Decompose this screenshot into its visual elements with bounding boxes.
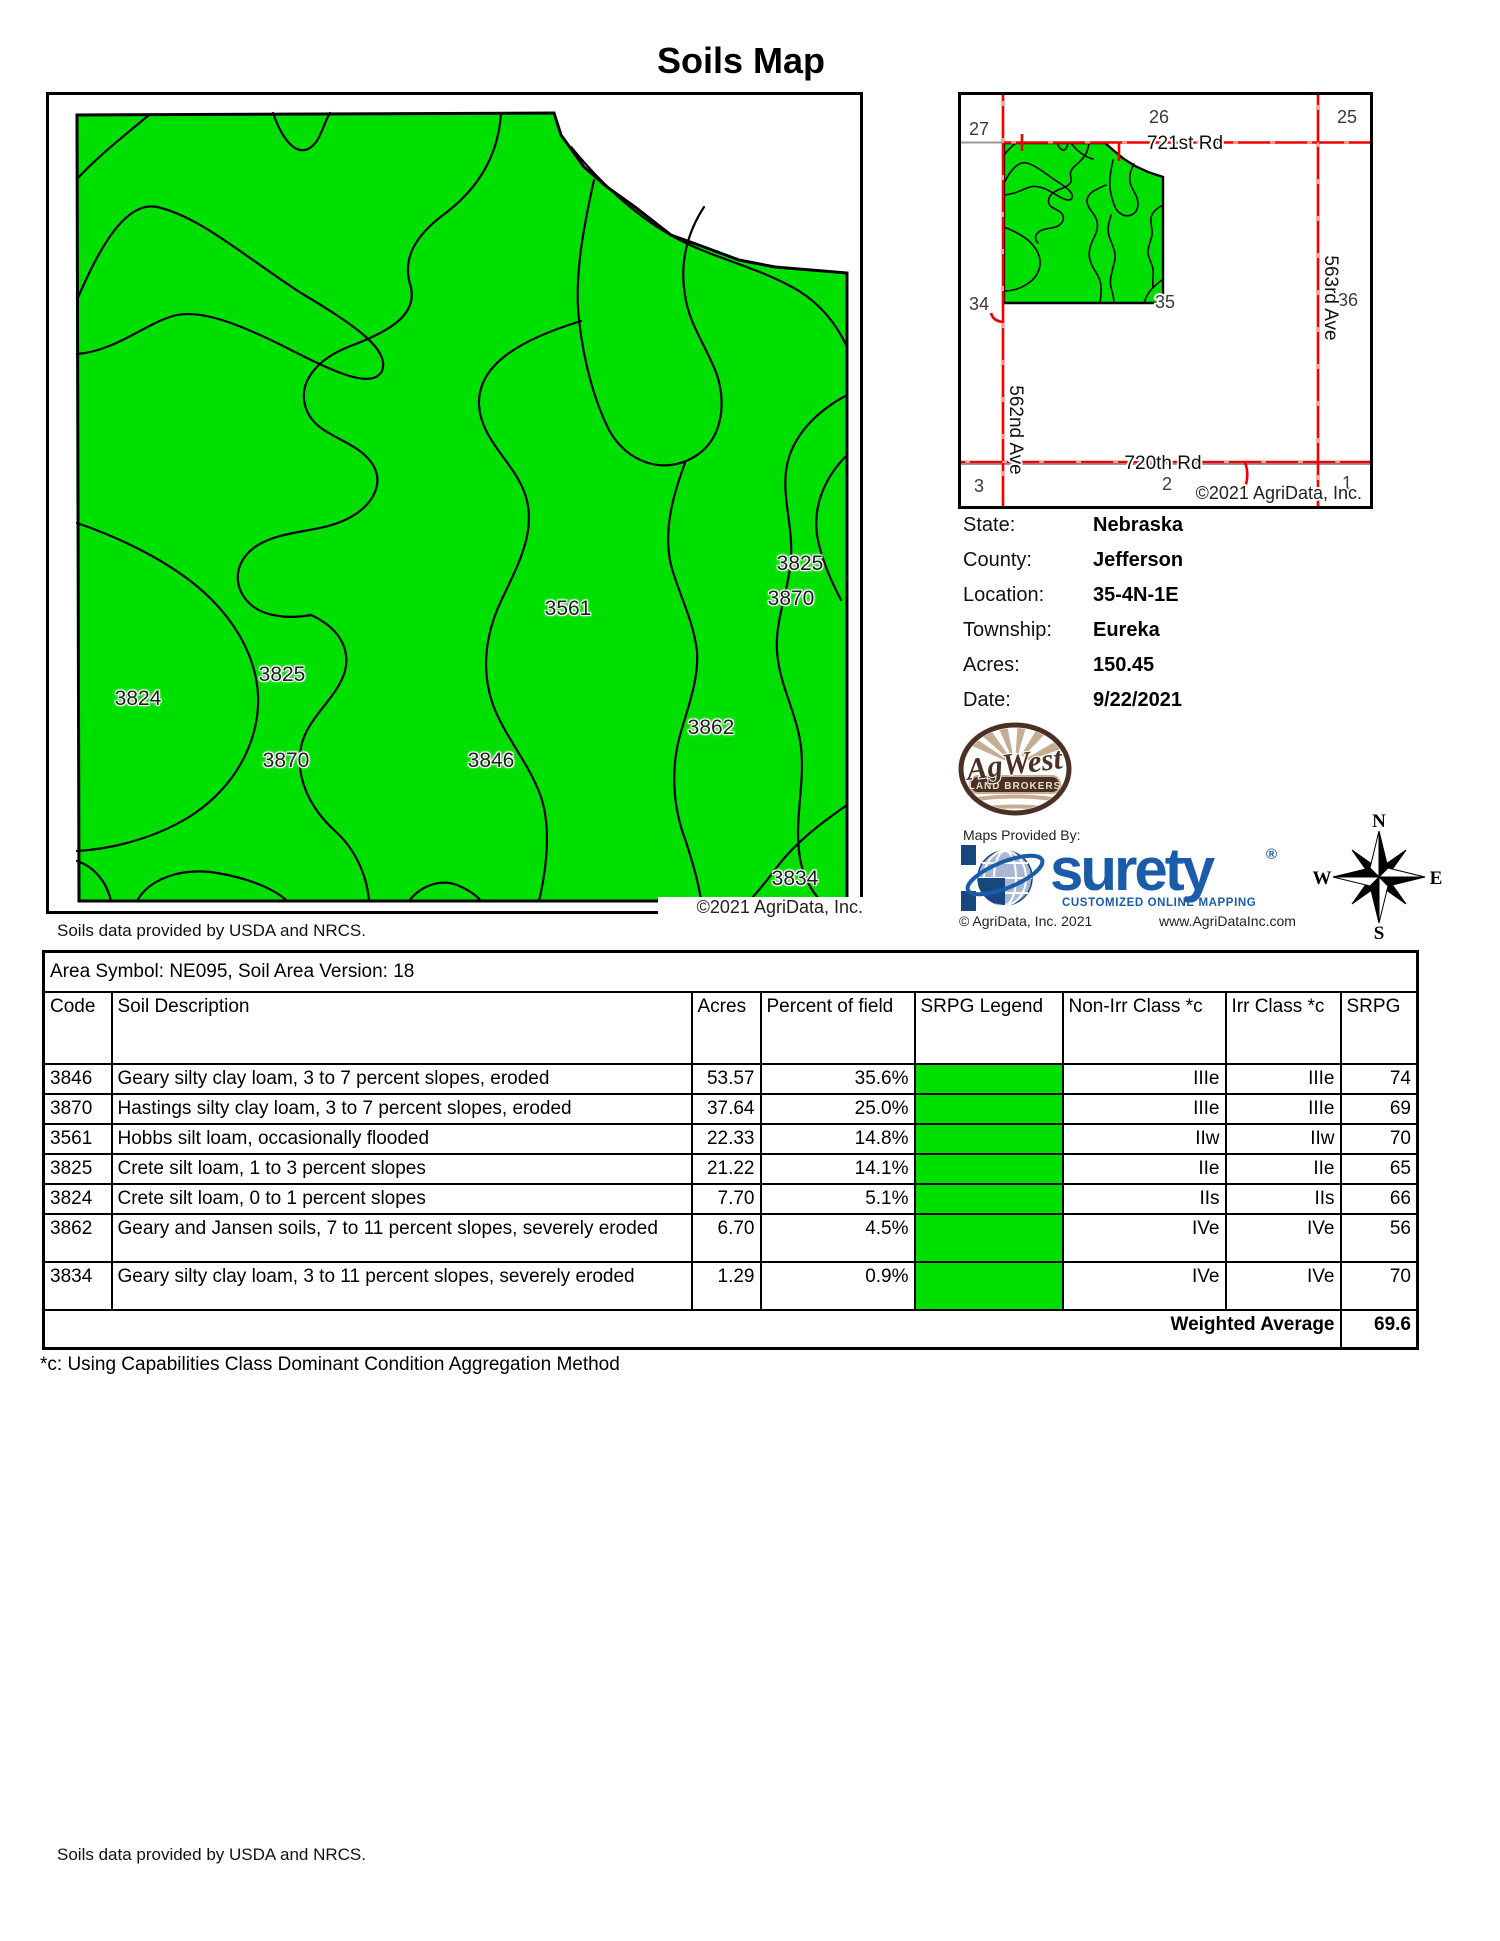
cell-percent: 5.1% (761, 1184, 915, 1214)
srpg-legend-swatch (915, 1184, 1063, 1214)
cell-percent: 14.8% (761, 1124, 915, 1154)
section-number: 27 (969, 119, 989, 139)
cell-srpg: 66 (1341, 1184, 1418, 1214)
cell-percent: 25.0% (761, 1094, 915, 1124)
compass-rose: N S E W (1304, 812, 1454, 947)
main-soil-map: 3825 3870 3561 3825 3824 3862 3870 3846 … (46, 92, 863, 914)
cell-acres: 6.70 (692, 1214, 761, 1262)
cell-description: Crete silt loam, 0 to 1 percent slopes (112, 1184, 692, 1214)
agridata-website: www.AgriDataInc.com (1159, 913, 1296, 929)
cell-description: Geary silty clay loam, 3 to 11 percent s… (112, 1262, 692, 1310)
srpg-legend-swatch (915, 1124, 1063, 1154)
cell-irr: IIIe (1226, 1064, 1341, 1094)
road-label-721st: 721st Rd (1147, 133, 1223, 154)
cell-nonirr: IVe (1063, 1262, 1226, 1310)
cell-srpg: 74 (1341, 1064, 1418, 1094)
cell-srpg: 69 (1341, 1094, 1418, 1124)
srpg-legend-swatch (915, 1064, 1063, 1094)
col-header-percent: Percent of field (761, 992, 915, 1064)
soil-area-label: 3870 (749, 587, 833, 611)
road-label-562nd: 562nd Ave (1005, 385, 1026, 474)
weighted-average-row: Weighted Average 69.6 (44, 1310, 1418, 1349)
info-value-county: Jefferson (1093, 549, 1183, 572)
cell-code: 3846 (44, 1064, 112, 1094)
main-map-attribution: Soils data provided by USDA and NRCS. (57, 921, 366, 941)
cell-description: Crete silt loam, 1 to 3 percent slopes (112, 1154, 692, 1184)
info-value-state: Nebraska (1093, 514, 1183, 537)
info-label-county: County: (963, 549, 1089, 572)
info-value-township: Eureka (1093, 619, 1160, 642)
cell-irr: IIe (1226, 1154, 1341, 1184)
cell-code: 3825 (44, 1154, 112, 1184)
aggregation-footnote: *c: Using Capabilities Class Dominant Co… (40, 1354, 620, 1376)
soils-table: Area Symbol: NE095, Soil Area Version: 1… (42, 950, 1419, 1350)
cell-code: 3561 (44, 1124, 112, 1154)
srpg-legend-swatch (915, 1094, 1063, 1124)
cell-irr: IVe (1226, 1262, 1341, 1310)
weighted-average-value: 69.6 (1341, 1310, 1418, 1349)
compass-e: E (1430, 868, 1443, 889)
table-row: 3561 Hobbs silt loam, occasionally flood… (44, 1124, 1418, 1154)
cell-irr: IIw (1226, 1124, 1341, 1154)
col-header-legend: SRPG Legend (915, 992, 1063, 1064)
cell-code: 3870 (44, 1094, 112, 1124)
col-header-acres: Acres (692, 992, 761, 1064)
soil-area-label: 3862 (669, 716, 753, 740)
road-label-563rd: 563rd Ave (1320, 255, 1341, 340)
cell-percent: 0.9% (761, 1262, 915, 1310)
cell-srpg: 70 (1341, 1262, 1418, 1310)
col-header-srpg: SRPG (1341, 992, 1418, 1064)
cell-irr: IIs (1226, 1184, 1341, 1214)
info-label-acres: Acres: (963, 654, 1089, 677)
srpg-legend-swatch (915, 1214, 1063, 1262)
cell-srpg: 56 (1341, 1214, 1418, 1262)
cell-nonirr: IIs (1063, 1184, 1226, 1214)
area-symbol-text: Area Symbol: NE095, Soil Area Version: 1… (44, 952, 1418, 993)
soils-map-report-page: Soils Map 3825 (0, 0, 1500, 1941)
table-row: 3846 Geary silty clay loam, 3 to 7 perce… (44, 1064, 1418, 1094)
cell-code: 3824 (44, 1184, 112, 1214)
cell-description: Geary silty clay loam, 3 to 7 percent sl… (112, 1064, 692, 1094)
info-label-state: State: (963, 514, 1089, 537)
compass-s: S (1374, 923, 1385, 942)
road-label-720th: 720th Rd (1124, 453, 1201, 474)
cell-nonirr: IVe (1063, 1214, 1226, 1262)
table-row: 3862 Geary and Jansen soils, 7 to 11 per… (44, 1214, 1418, 1262)
info-label-township: Township: (963, 619, 1089, 642)
soil-area-label: 3824 (96, 687, 180, 711)
cell-code: 3862 (44, 1214, 112, 1262)
soil-area-label: 3561 (526, 597, 610, 621)
cell-acres: 21.22 (692, 1154, 761, 1184)
agwest-logo: LAND BROKERS AgWest (956, 720, 1074, 823)
compass-rose-svg: N S E W (1304, 812, 1454, 942)
agwest-logo-svg: LAND BROKERS AgWest (956, 720, 1074, 818)
cell-description: Hastings silty clay loam, 3 to 7 percent… (112, 1094, 692, 1124)
info-label-date: Date: (963, 689, 1089, 712)
compass-n: N (1372, 812, 1386, 832)
cell-percent: 14.1% (761, 1154, 915, 1184)
srpg-legend-swatch (915, 1262, 1063, 1310)
locator-parcel (1004, 143, 1163, 303)
section-number: 25 (1337, 107, 1357, 127)
section-number: 35 (1155, 292, 1175, 312)
table-row: 3870 Hastings silty clay loam, 3 to 7 pe… (44, 1094, 1418, 1124)
section-number: 34 (969, 294, 989, 314)
cell-irr: IVe (1226, 1214, 1341, 1262)
section-number: 26 (1149, 107, 1169, 127)
agridata-copyright: © AgriData, Inc. 2021 (959, 913, 1092, 929)
info-value-acres: 150.45 (1093, 654, 1154, 677)
main-map-copyright: ©2021 AgriData, Inc. (658, 897, 863, 917)
col-header-description: Soil Description (112, 992, 692, 1064)
main-soil-map-svg (49, 95, 860, 911)
surety-brand-text: surety (1050, 840, 1212, 900)
table-row: 3825 Crete silt loam, 1 to 3 percent slo… (44, 1154, 1418, 1184)
cell-srpg: 70 (1341, 1124, 1418, 1154)
surety-globe-svg (961, 845, 1045, 911)
locator-map: 27 26 25 34 35 36 3 2 1 721st Rd 720th R… (958, 92, 1373, 509)
locator-map-svg: 27 26 25 34 35 36 3 2 1 721st Rd 720th R… (961, 95, 1370, 506)
info-value-date: 9/22/2021 (1093, 689, 1182, 712)
surety-tagline: CUSTOMIZED ONLINE MAPPING (1062, 897, 1256, 909)
surety-registered-mark: ® (1266, 846, 1277, 863)
cell-nonirr: IIIe (1063, 1064, 1226, 1094)
weighted-average-label: Weighted Average (44, 1310, 1341, 1349)
compass-star (1333, 831, 1425, 923)
col-header-nonirr: Non-Irr Class *c (1063, 992, 1226, 1064)
col-header-code: Code (44, 992, 112, 1064)
cell-percent: 4.5% (761, 1214, 915, 1262)
cell-srpg: 65 (1341, 1154, 1418, 1184)
cell-acres: 37.64 (692, 1094, 761, 1124)
compass-w: W (1313, 868, 1332, 889)
srpg-legend-swatch (915, 1154, 1063, 1184)
cell-nonirr: IIw (1063, 1124, 1226, 1154)
info-value-location: 35-4N-1E (1093, 584, 1179, 607)
parcel-boundary (77, 113, 847, 901)
cell-nonirr: IIIe (1063, 1094, 1226, 1124)
cell-irr: IIIe (1226, 1094, 1341, 1124)
soil-area-label: 3825 (240, 663, 324, 687)
bottom-attribution: Soils data provided by USDA and NRCS. (57, 1845, 366, 1865)
section-number: 3 (974, 476, 984, 496)
surety-globe-icon (961, 845, 1045, 916)
cell-description: Hobbs silt loam, occasionally flooded (112, 1124, 692, 1154)
table-header-row: Code Soil Description Acres Percent of f… (44, 992, 1418, 1064)
cell-percent: 35.6% (761, 1064, 915, 1094)
cell-acres: 22.33 (692, 1124, 761, 1154)
info-label-location: Location: (963, 584, 1089, 607)
col-header-irr: Irr Class *c (1226, 992, 1341, 1064)
soil-area-label: 3846 (449, 749, 533, 773)
page-title: Soils Map (0, 40, 1482, 82)
soil-area-label: 3834 (753, 867, 837, 891)
soil-area-label: 3870 (244, 749, 328, 773)
locator-copyright: ©2021 AgriData, Inc. (1196, 483, 1362, 503)
cell-description: Geary and Jansen soils, 7 to 11 percent … (112, 1214, 692, 1262)
table-row: 3834 Geary silty clay loam, 3 to 11 perc… (44, 1262, 1418, 1310)
cell-code: 3834 (44, 1262, 112, 1310)
section-number: 2 (1162, 474, 1172, 494)
area-symbol-row: Area Symbol: NE095, Soil Area Version: 1… (44, 952, 1418, 993)
table-row: 3824 Crete silt loam, 0 to 1 percent slo… (44, 1184, 1418, 1214)
cell-acres: 7.70 (692, 1184, 761, 1214)
cell-nonirr: IIe (1063, 1154, 1226, 1184)
cell-acres: 53.57 (692, 1064, 761, 1094)
soil-area-label: 3825 (758, 552, 842, 576)
cell-acres: 1.29 (692, 1262, 761, 1310)
